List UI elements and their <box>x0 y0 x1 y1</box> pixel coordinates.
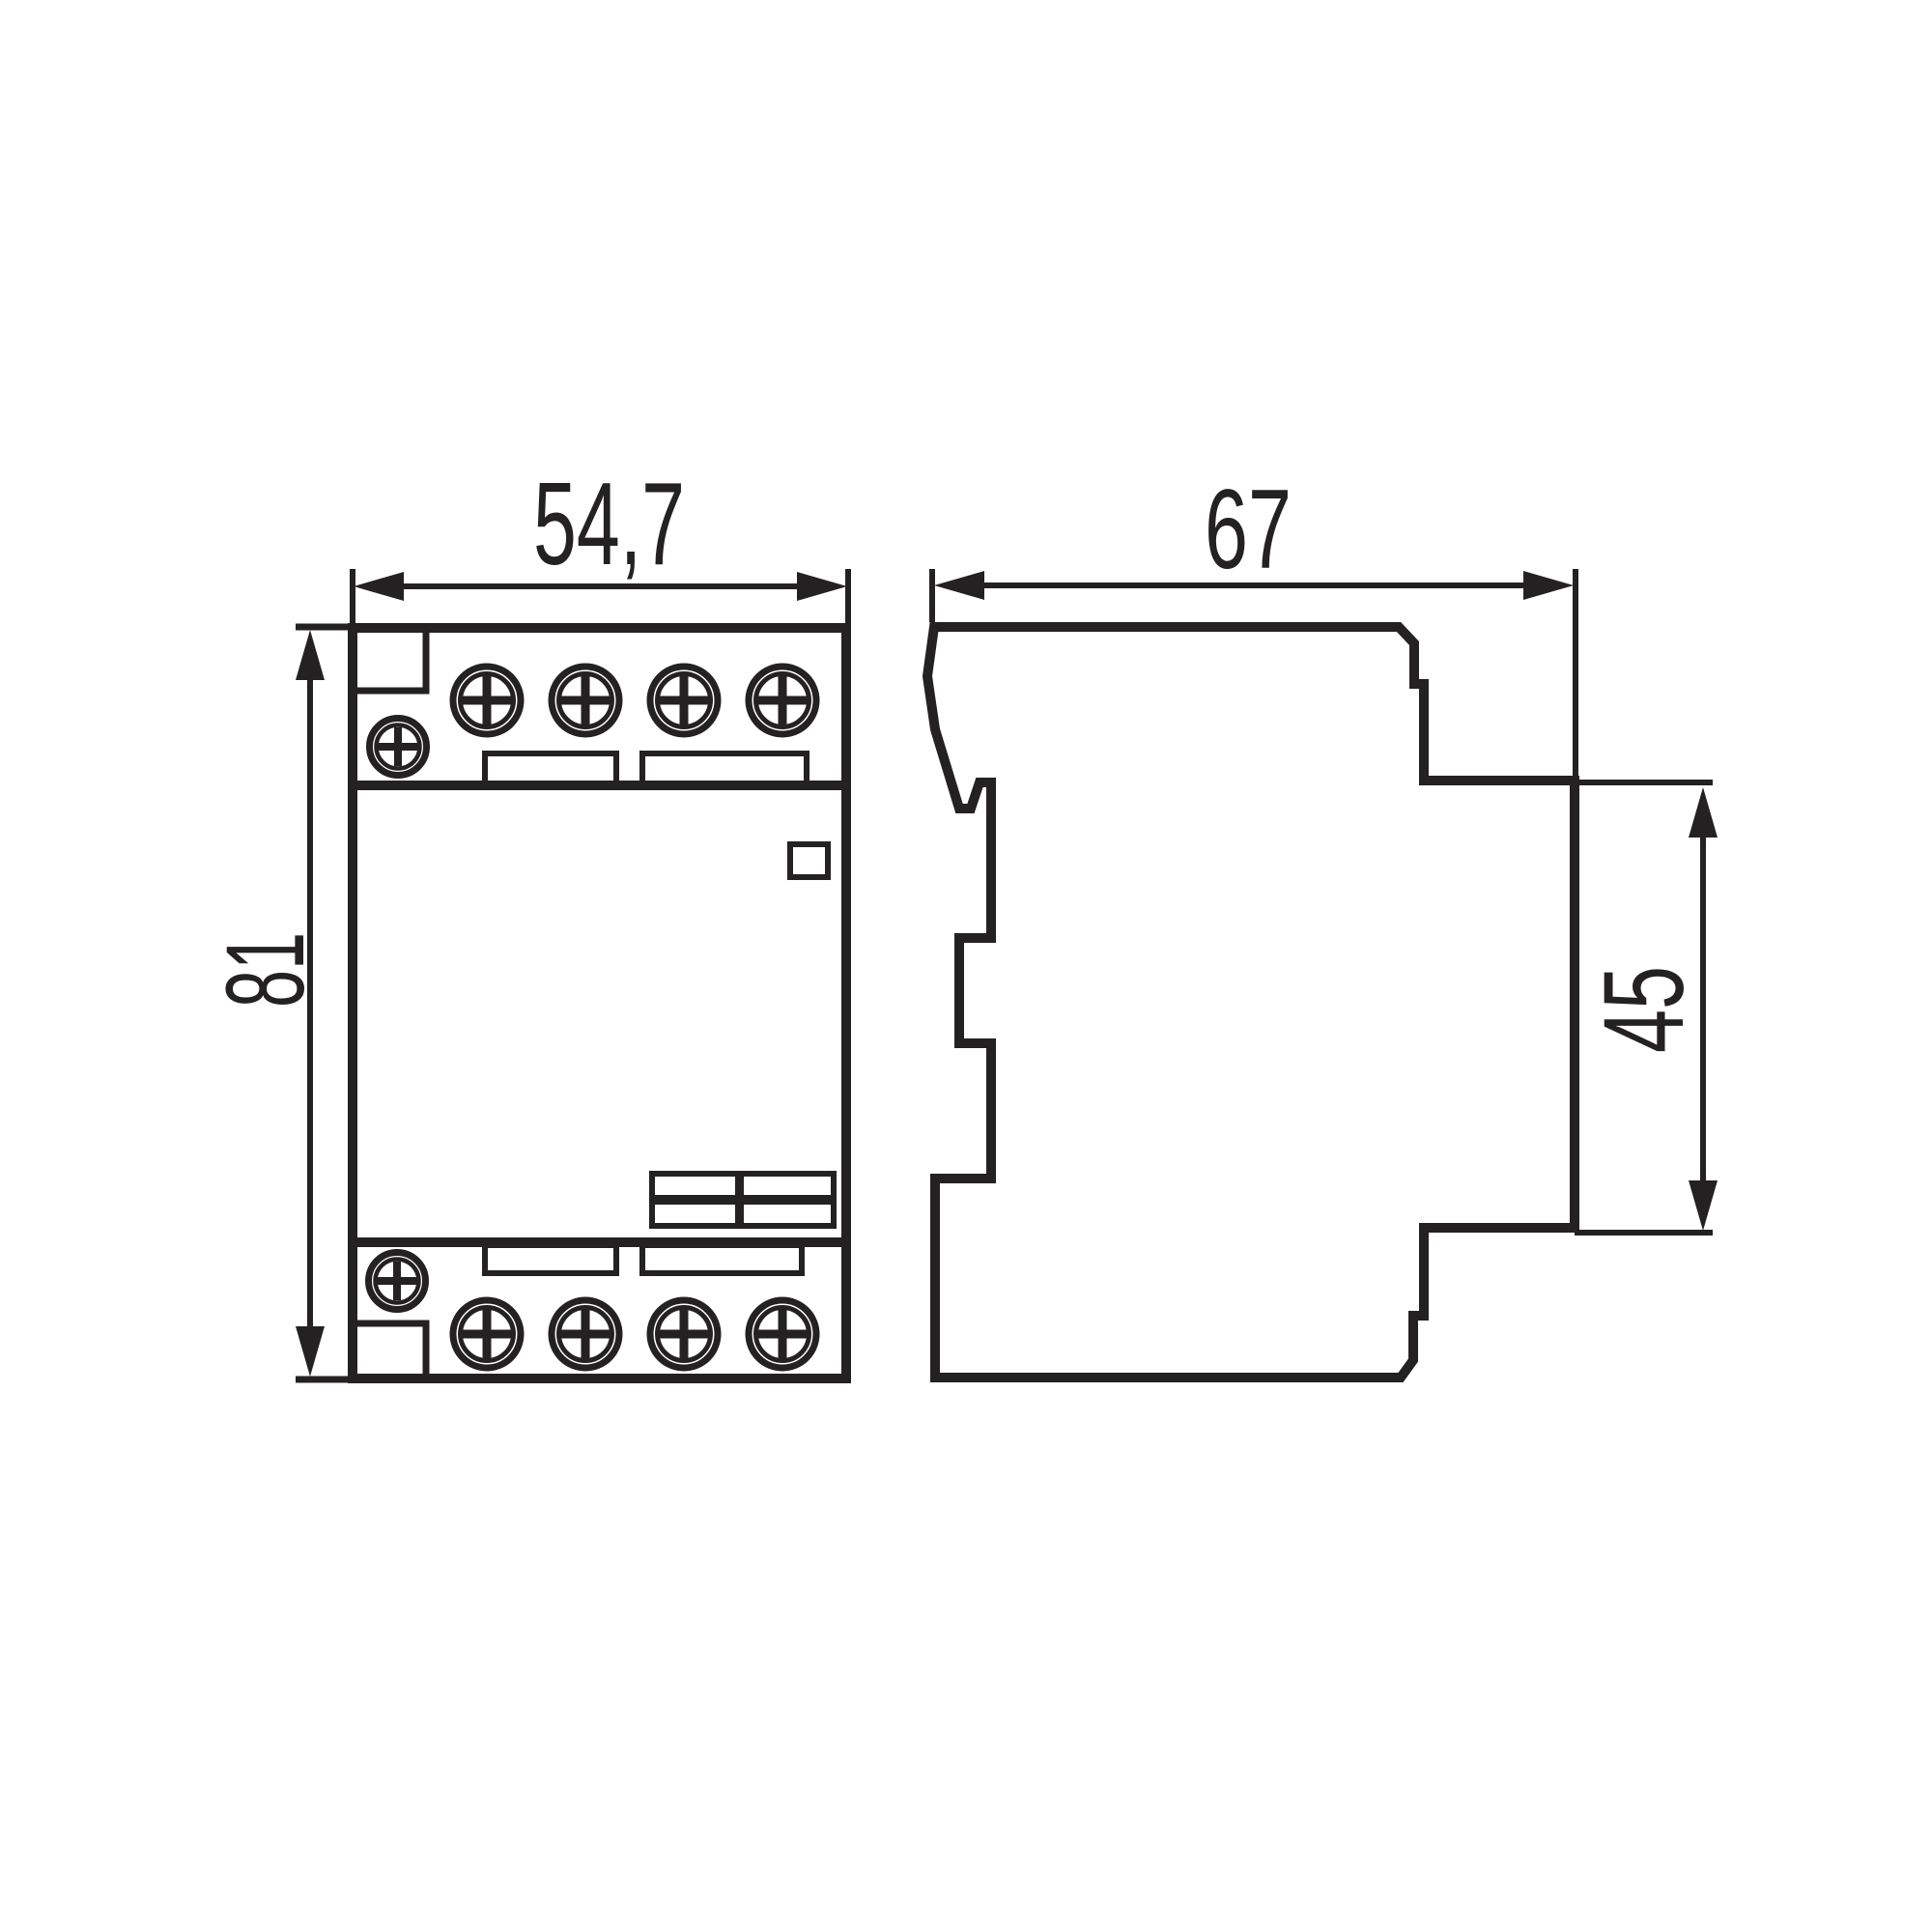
svg-text:45: 45 <box>1580 966 1708 1053</box>
svg-text:81: 81 <box>204 932 327 1008</box>
svg-text:67: 67 <box>1205 466 1292 592</box>
svg-text:54,7: 54,7 <box>533 458 685 589</box>
